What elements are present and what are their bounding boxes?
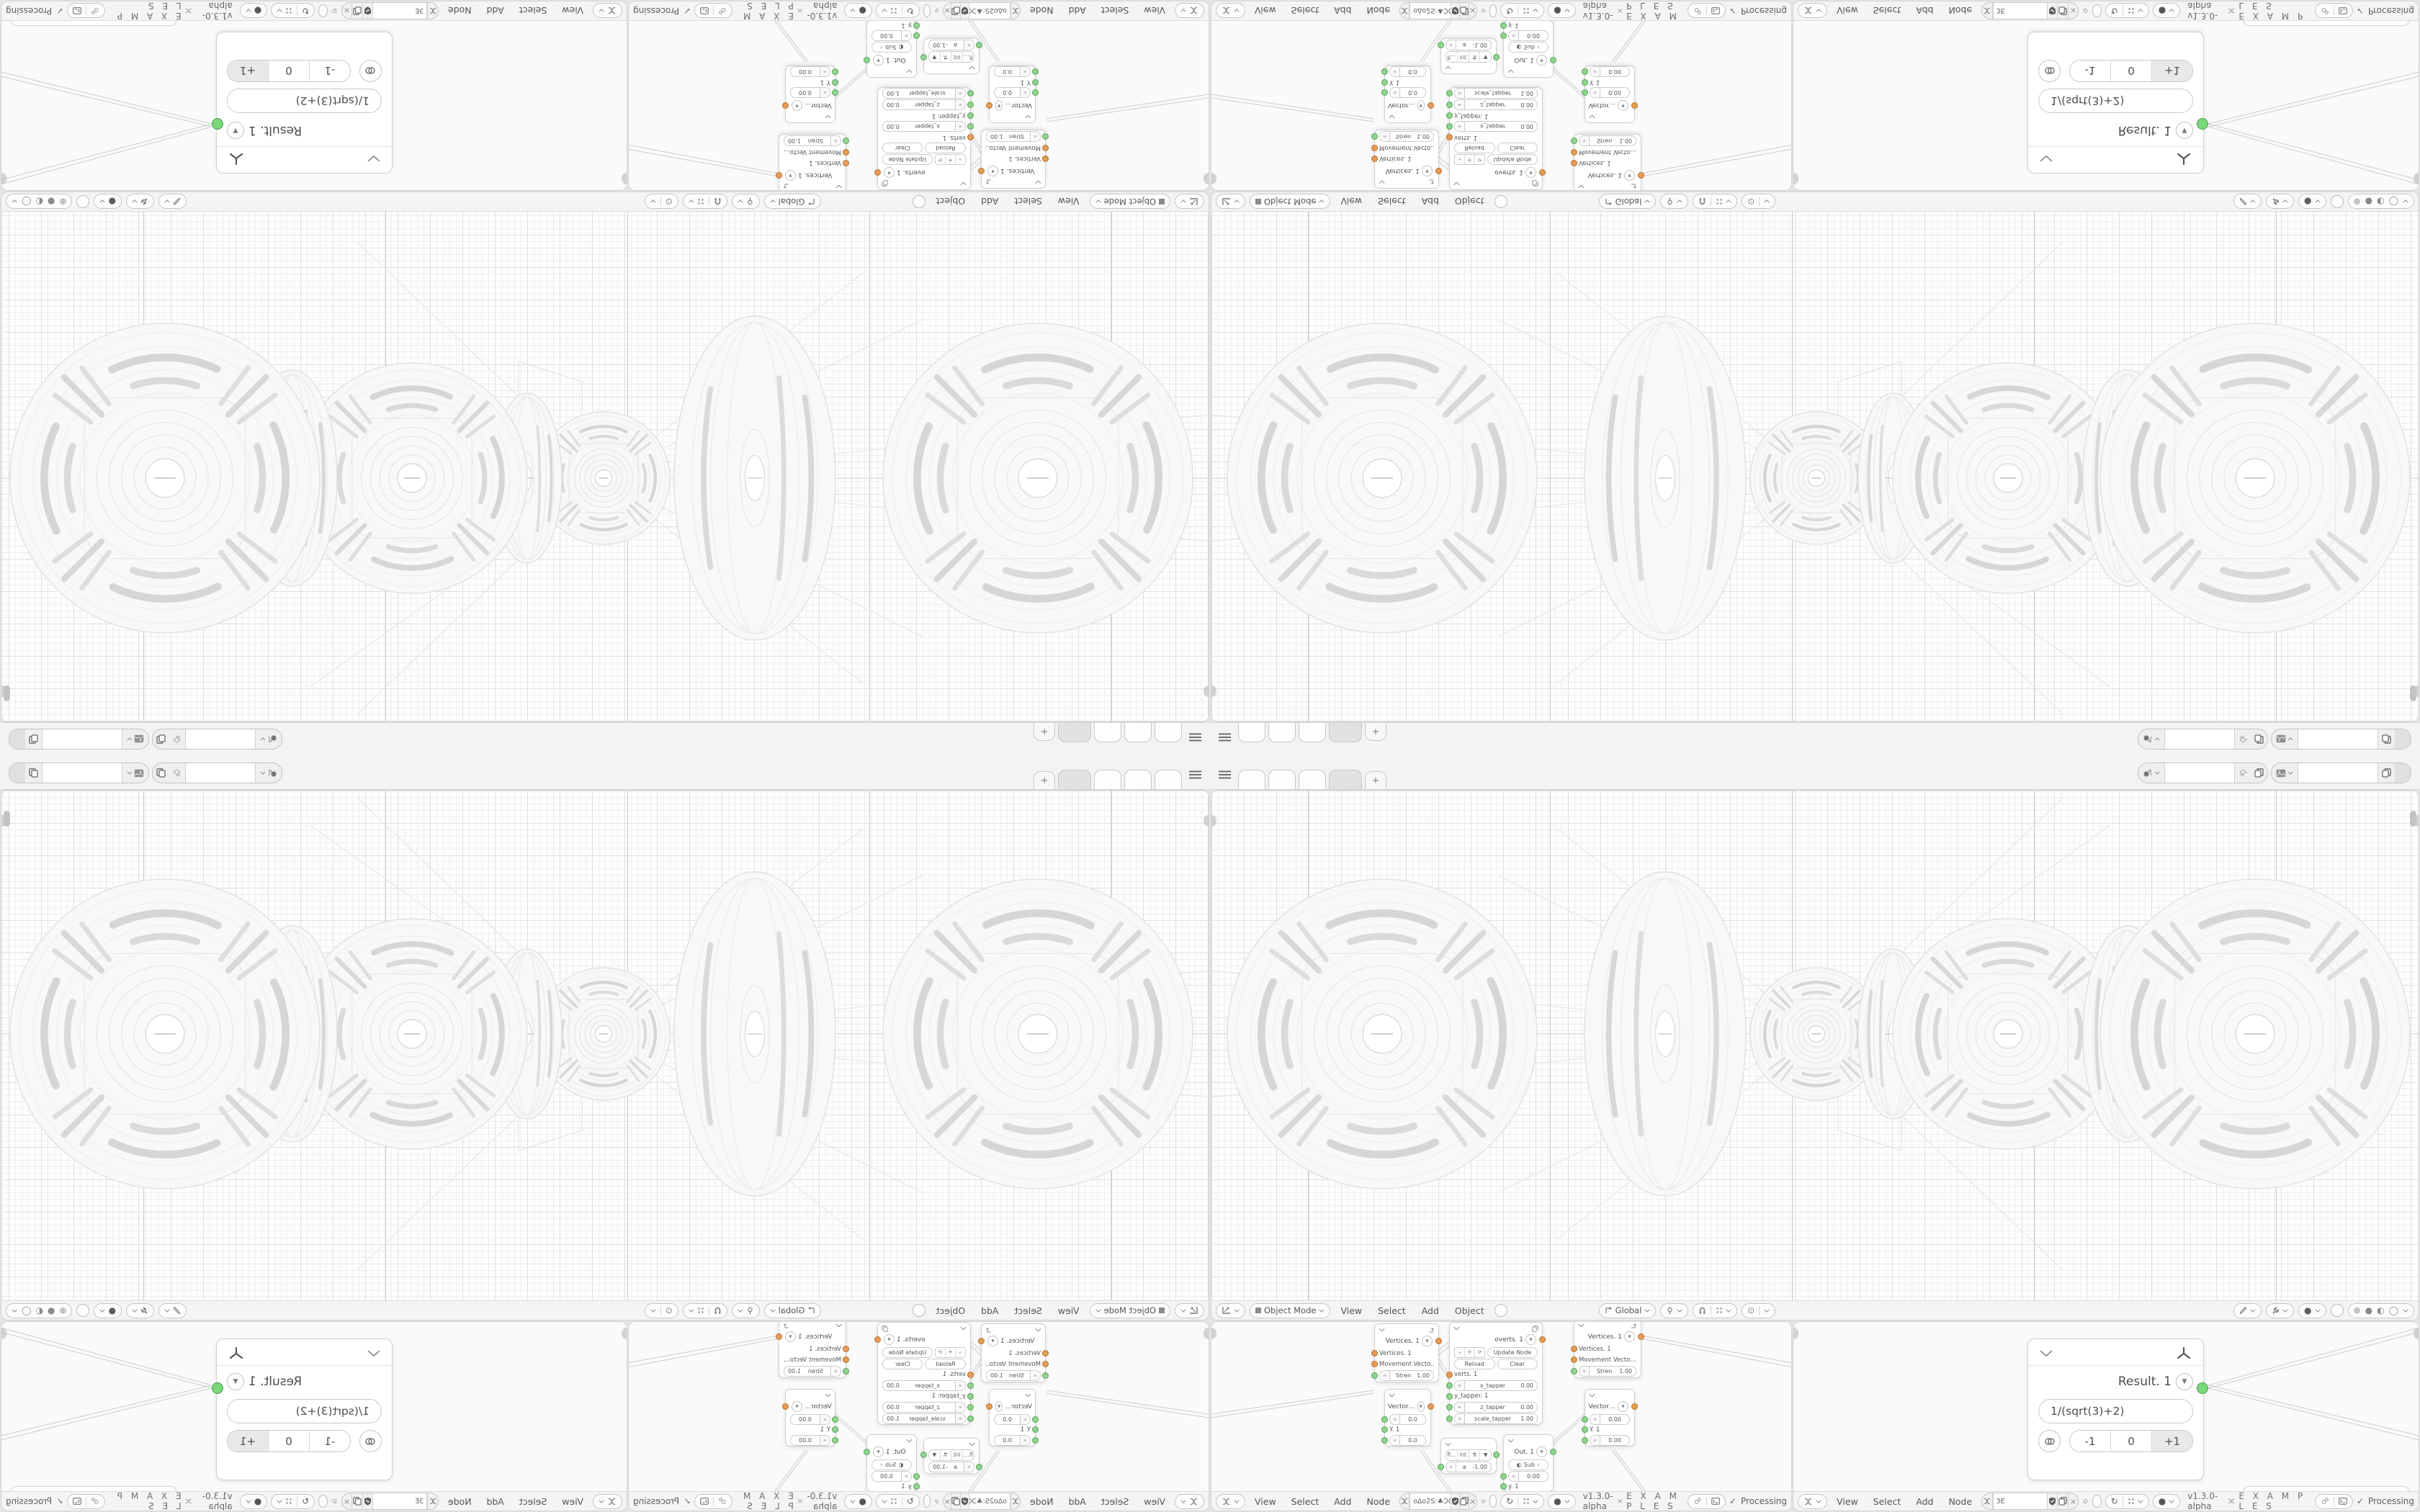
redirect-icon[interactable]: ⤷ (955, 156, 965, 165)
field-toggle-icon[interactable]: ≡ (1446, 40, 1456, 50)
input-socket[interactable] (1571, 138, 1577, 144)
refresh-icon[interactable]: ⟳ (1475, 1348, 1484, 1357)
menu-add[interactable]: Add (1328, 6, 1357, 17)
field-toggle-icon[interactable]: ≡ (964, 40, 974, 50)
tool-circle-button[interactable] (923, 4, 931, 17)
user-snap-group[interactable]: ↻ (1500, 4, 1544, 19)
pin-icon[interactable] (2082, 1497, 2089, 1506)
input-socket[interactable] (1042, 145, 1049, 151)
beaker-icon[interactable]: ⚗ (940, 1450, 951, 1460)
collapse-chevron-icon[interactable] (1025, 1393, 1031, 1398)
tree-name-field[interactable]: oΔo2S:♣ƆC♣ЯRoЯR♣ƆC♣:S2oΔo (969, 1493, 1010, 1509)
tools-group[interactable] (2315, 1494, 2353, 1509)
tools-group[interactable] (67, 4, 105, 19)
decrement-button[interactable]: -1 (2070, 60, 2111, 81)
menu-select[interactable]: Select (1286, 1496, 1325, 1507)
node-out[interactable]: Out. 1▼ ◐Sub∨ ≡0.00 y. 1 (866, 1434, 917, 1492)
field-toggle-icon[interactable]: ≡ (964, 1462, 974, 1472)
vector-z-field[interactable]: ≡0.00 (1590, 67, 1630, 78)
input-socket[interactable] (1500, 33, 1507, 40)
proportional-edit-group[interactable]: ⊙ (645, 194, 678, 210)
snap-button-group[interactable] (683, 194, 727, 210)
pin-icon[interactable] (2235, 769, 2251, 778)
collapse-chevron-icon[interactable] (367, 155, 380, 162)
input-socket[interactable] (1582, 1426, 1588, 1433)
tools-group[interactable] (694, 1494, 732, 1509)
node-overts[interactable]: overts. 1▼ ⤷✳⟳ Update Node Reload Clear … (877, 1322, 971, 1425)
transform-orientation-dropdown[interactable]: Global (764, 1303, 822, 1318)
dropdown-arrow[interactable]: ▼ (929, 53, 940, 63)
node-menu-button[interactable]: ▼ (1536, 1446, 1547, 1457)
collapse-chevron-icon[interactable] (969, 1442, 975, 1446)
menu-object[interactable]: Object (930, 197, 971, 207)
input-socket[interactable] (1446, 113, 1453, 120)
add-workspace-tab-button[interactable]: + (1365, 723, 1386, 741)
shading-mode-group[interactable]: ⊕ ● ◐ ◯ (6, 1303, 72, 1318)
output-socket[interactable] (782, 102, 789, 109)
output-socket[interactable] (1638, 172, 1644, 179)
output-socket[interactable] (1631, 102, 1638, 109)
increment-button[interactable]: +1 (228, 60, 268, 81)
stren-field[interactable]: ≡Stren1.00 (784, 1366, 841, 1377)
input-socket[interactable] (1500, 22, 1507, 29)
close-icon[interactable]: × (944, 1493, 951, 1509)
input-socket[interactable] (1571, 160, 1577, 166)
user-snap-group[interactable]: ↻ (876, 4, 920, 19)
stren-field[interactable]: ≡Stren1.00 (1379, 1370, 1434, 1381)
increment-button[interactable]: +1 (2152, 1431, 2192, 1452)
scene-name-field[interactable] (185, 729, 256, 749)
mode-dropdown[interactable]: Object Mode (1250, 194, 1330, 210)
workspace-tab-4-active[interactable] (1329, 770, 1362, 789)
output-socket[interactable] (1638, 1333, 1644, 1340)
app-menu-icon[interactable] (1219, 733, 1231, 742)
shield-icon[interactable] (362, 1493, 373, 1509)
tree-icon-dropdown[interactable] (1982, 1493, 1993, 1509)
workspace-tab-4-active[interactable] (1058, 723, 1091, 742)
editor-type-button[interactable] (1175, 1494, 1204, 1509)
input-socket[interactable] (1446, 1372, 1453, 1378)
a-value-field[interactable]: ≡a-1.00 (1446, 40, 1492, 50)
workspace-tab-3[interactable] (1299, 770, 1326, 789)
shield-icon[interactable] (362, 3, 373, 19)
a-value-field[interactable]: ≡a-1.00 (1446, 1462, 1492, 1472)
node-result[interactable]: Result. 1 ▼ 1/(sqrt(3)+2) -1 0 +1 (216, 1338, 393, 1480)
stren-field[interactable]: ≡Stren1.00 (1579, 1366, 1636, 1377)
vector-x-field[interactable]: ≡0.00 (1590, 1414, 1630, 1425)
close-icon[interactable]: × (342, 1493, 352, 1509)
editor-type-button[interactable] (1175, 1303, 1204, 1318)
collapse-chevron-icon[interactable] (1035, 1328, 1041, 1332)
scene-name-field[interactable] (185, 763, 256, 783)
pin-icon[interactable] (2082, 6, 2089, 16)
input-socket[interactable] (843, 1356, 849, 1363)
collapse-chevron-icon[interactable] (1035, 180, 1041, 184)
field-toggle-icon[interactable]: ≡ (1509, 1472, 1519, 1481)
node-menu-button[interactable]: ▼ (1536, 55, 1547, 66)
menu-view[interactable]: View (1138, 6, 1171, 17)
field-toggle-icon[interactable]: ≡ (1590, 89, 1600, 98)
pin-icon[interactable] (169, 769, 185, 778)
shading-mode-group[interactable]: ⊕ ● ◐ ◯ (2348, 194, 2414, 210)
area-corner-nub[interactable] (622, 1328, 627, 1339)
workspace-tab-2[interactable] (1268, 770, 1296, 789)
input-socket[interactable] (967, 91, 974, 97)
node-menu-button[interactable]: ▼ (1422, 1336, 1433, 1346)
beaker-icon[interactable]: ⚗ (1469, 1450, 1481, 1460)
input-socket[interactable] (1032, 69, 1039, 76)
output-socket[interactable] (1539, 169, 1546, 176)
output-socket[interactable] (1539, 1336, 1546, 1343)
workspace-tab-2[interactable] (1268, 723, 1296, 742)
node-out[interactable]: Out. 1▼ ◐Sub∨ ≡0.00 y. 1 (1503, 20, 1554, 78)
menu-add[interactable]: Add (975, 1305, 1004, 1316)
node-vector[interactable]: Vector…▼ ≡0.00 Y. 1 ≡0.00 (785, 66, 835, 123)
input-socket[interactable] (1571, 149, 1577, 156)
vector-x-field[interactable]: ≡0.00 (790, 88, 830, 99)
output-socket[interactable] (782, 1403, 789, 1410)
node-canvas[interactable]: Result. 1 ▼ 1/(sqrt(3)+2) -1 0 +1 (1, 1322, 627, 1493)
field-toggle-icon[interactable]: ≡ (820, 89, 830, 98)
scale-tapper-field[interactable]: ≡scale_tapper1.00 (882, 1413, 966, 1424)
settings-icon[interactable]: ✳ (945, 156, 955, 165)
menu-select[interactable]: Select (1008, 1305, 1048, 1316)
copy-icon[interactable] (153, 768, 169, 778)
pin-icon[interactable] (2235, 735, 2251, 744)
node-menu-button[interactable]: ▼ (873, 55, 884, 66)
collapse-chevron-icon[interactable] (1578, 184, 1585, 189)
input-socket[interactable] (1371, 145, 1378, 151)
field-toggle-icon[interactable]: ≡ (955, 1403, 965, 1412)
node-menu-button[interactable]: ▼ (873, 1446, 884, 1457)
node-tool-buttons[interactable]: ⤷✳⟳ (1454, 1347, 1485, 1358)
field-toggle-icon[interactable]: ≡ (1020, 1415, 1030, 1424)
input-socket[interactable] (1032, 1426, 1039, 1433)
tool-circle-button[interactable] (1494, 195, 1507, 208)
area-corner-nub[interactable] (622, 173, 627, 184)
node-vertices[interactable]: Vertices. 1▼ Vertices. 1 Movement Vecto…… (1574, 134, 1641, 191)
result-output-socket[interactable] (2197, 118, 2208, 130)
workspace-tab-3[interactable] (1094, 770, 1121, 789)
output-socket[interactable] (920, 1452, 927, 1458)
vector-z-field[interactable]: ≡0.00 (1590, 1435, 1630, 1446)
input-socket[interactable] (1571, 1356, 1577, 1363)
node-menu-button[interactable]: ▼ (792, 1401, 802, 1412)
collapse-chevron-icon[interactable] (960, 1326, 967, 1331)
update-node-button[interactable]: Update Node (1487, 155, 1538, 166)
node-canvas[interactable]: Result. 1 ▼ 1/(sqrt(3)+2) -1 0 +1 (1, 19, 627, 190)
node-vector[interactable]: Vector…▼ ≡0.00 Y. 1 ≡0.00 (785, 1389, 835, 1446)
copy-icon[interactable] (2378, 768, 2395, 778)
link-button[interactable] (2038, 1430, 2061, 1452)
copy-icon[interactable] (153, 734, 169, 744)
input-socket[interactable] (1446, 135, 1453, 141)
collapse-chevron-icon[interactable] (1453, 1326, 1460, 1331)
output-socket[interactable] (1435, 1338, 1442, 1344)
close-icon[interactable]: × (1469, 3, 1476, 19)
field-toggle-icon[interactable]: ≡ (955, 1414, 965, 1423)
xray-toggle[interactable] (76, 195, 89, 208)
xray-toggle[interactable] (76, 1304, 89, 1317)
menu-node[interactable]: Node (1024, 6, 1059, 17)
close-icon[interactable]: × (342, 3, 352, 19)
shading-mode-group[interactable]: ⊕ ● ◐ ◯ (2348, 1303, 2414, 1318)
input-socket[interactable] (1381, 79, 1388, 86)
node-menu-button[interactable]: ▼ (792, 100, 802, 111)
input-socket[interactable] (967, 1393, 974, 1400)
float-option[interactable]: fl… (1446, 1450, 1458, 1460)
menu-view[interactable]: View (1249, 6, 1282, 17)
settings-icon[interactable]: ✳ (1465, 1348, 1475, 1357)
node-overts[interactable]: overts. 1▼ ⤷✳⟳ Update Node Reload Clear … (1449, 87, 1543, 190)
pin-icon[interactable] (934, 1497, 939, 1506)
user-snap-group[interactable]: ↻ (876, 1494, 920, 1509)
input-socket[interactable] (1032, 90, 1039, 96)
pivot-point-button[interactable] (1660, 194, 1688, 210)
pin-icon[interactable] (1481, 1497, 1486, 1506)
menu-select[interactable]: Select (1095, 1496, 1135, 1507)
node-menu-button[interactable]: ▼ (1624, 170, 1635, 181)
collapse-chevron-icon[interactable] (960, 181, 967, 186)
viewport-canvas[interactable] (1211, 210, 2419, 721)
menu-add[interactable]: Add (975, 197, 1004, 207)
z-tapper-field[interactable]: ≡z_tapper0.00 (1454, 100, 1538, 111)
node-menu-button[interactable]: ▼ (1624, 1331, 1635, 1342)
input-socket[interactable] (1371, 1372, 1378, 1379)
input-socket[interactable] (976, 1464, 982, 1470)
zero-button[interactable]: 0 (268, 60, 309, 81)
input-socket[interactable] (1446, 1393, 1453, 1400)
menu-node[interactable]: Node (442, 6, 478, 17)
field-toggle-icon[interactable]: ≡ (1390, 1436, 1400, 1445)
input-socket[interactable] (1371, 1361, 1378, 1367)
field-toggle-icon[interactable]: ≡ (901, 32, 911, 41)
x-tapper-field[interactable]: ≡x_tapper0.00 (882, 1380, 966, 1391)
output-socket[interactable] (864, 1449, 870, 1455)
update-node-button[interactable]: Update Node (882, 1347, 933, 1358)
overlays-group[interactable] (2266, 1303, 2294, 1318)
output-socket[interactable] (776, 172, 782, 179)
pin-icon[interactable] (1481, 6, 1486, 16)
shield-icon[interactable] (1451, 3, 1460, 19)
out-value-field[interactable]: ≡0.00 (1508, 31, 1549, 42)
node-canvas[interactable]: Result. 1 ▼ 1/(sqrt(3)+2) -1 0 +1 (1793, 1322, 2419, 1493)
field-toggle-icon[interactable]: ≡ (1380, 132, 1390, 141)
float-option[interactable]: fl… (962, 1450, 974, 1460)
workspace-tab-2[interactable] (1124, 723, 1152, 742)
input-socket[interactable] (1042, 156, 1049, 162)
increment-button[interactable]: +1 (228, 1431, 268, 1452)
field-toggle-icon[interactable]: ≡ (955, 89, 965, 99)
field-toggle-icon[interactable]: ≡ (1579, 136, 1590, 145)
node-menu-button[interactable]: ▼ (884, 1334, 895, 1345)
workspace-tab-1[interactable] (1155, 723, 1182, 742)
app-menu-icon[interactable] (1219, 770, 1231, 779)
scale-tapper-field[interactable]: ≡scale_tapper1.00 (1454, 1413, 1538, 1424)
viewport-canvas[interactable] (1, 791, 1209, 1302)
scene-name-field[interactable] (2164, 729, 2235, 749)
node-canvas[interactable]: Vertices. 1▼ Vertices. 1 Movement Vecto…… (629, 1322, 1209, 1493)
input-socket[interactable] (1582, 69, 1588, 76)
out-value-field[interactable]: ≡0.00 (871, 31, 912, 42)
node-menu-button[interactable]: ▼ (987, 1336, 998, 1346)
node-menu-button[interactable]: ▼ (785, 170, 796, 181)
snap-button-group[interactable] (1693, 1303, 1737, 1318)
node-vertices[interactable]: Vertices. 1▼ Vertices. 1 Movement Vecto…… (981, 130, 1046, 189)
matcap-group[interactable]: ● (2298, 194, 2326, 210)
node-menu-button[interactable]: ▼ (1618, 1401, 1628, 1412)
tool-circle-button[interactable] (923, 1495, 931, 1508)
material-preview-group[interactable]: ● (2153, 1494, 2180, 1509)
operation-dropdown[interactable]: ◐Sub∨ (871, 42, 912, 53)
material-preview-group[interactable]: ● (844, 4, 871, 19)
vector-z-field[interactable]: ≡0.00 (790, 1435, 830, 1446)
formula-input[interactable]: 1/(sqrt(3)+2) (2038, 1399, 2193, 1423)
field-toggle-icon[interactable]: ≡ (1455, 1403, 1465, 1412)
collapse-chevron-icon[interactable] (2040, 1350, 2053, 1357)
input-socket[interactable] (1446, 1404, 1453, 1410)
collapse-chevron-icon[interactable] (1507, 1439, 1514, 1443)
menu-add[interactable]: Add (481, 6, 510, 17)
input-socket[interactable] (967, 113, 974, 120)
scene-selector[interactable] (152, 762, 282, 783)
examples-button[interactable]: E X A M P L E S (736, 1, 794, 21)
node-canvas[interactable]: Result. 1 ▼ 1/(sqrt(3)+2) -1 0 +1 (1793, 19, 2419, 190)
input-socket[interactable] (1371, 156, 1378, 162)
float-option[interactable]: fl… (962, 53, 974, 63)
workspace-tab-4-active[interactable] (1058, 770, 1091, 789)
field-toggle-icon[interactable]: ≡ (1390, 68, 1400, 77)
node-menu-button[interactable]: ▼ (884, 167, 895, 178)
input-socket[interactable] (1446, 1416, 1453, 1422)
copy-icon[interactable] (1460, 3, 1469, 19)
field-toggle-icon[interactable]: ≡ (1390, 89, 1400, 98)
menu-view[interactable]: View (1052, 1305, 1085, 1316)
node-vertices[interactable]: Vertices. 1▼ Vertices. 1 Movement Vecto…… (779, 1321, 846, 1378)
menu-select[interactable]: Select (1372, 197, 1412, 207)
vector-x-field[interactable]: ≡0.0 (1389, 88, 1426, 99)
menu-view[interactable]: View (1831, 6, 1864, 17)
workspace-tab-2[interactable] (1124, 770, 1152, 789)
editor-type-button[interactable] (593, 4, 622, 19)
collapse-chevron-icon[interactable] (2040, 155, 2053, 162)
stren-field[interactable]: ≡Stren1.00 (784, 135, 841, 146)
input-socket[interactable] (843, 160, 849, 166)
shield-icon[interactable] (2048, 3, 2058, 19)
menu-object[interactable]: Object (930, 1305, 971, 1316)
menu-add[interactable]: Add (1416, 197, 1445, 207)
input-socket[interactable] (832, 69, 838, 76)
shield-icon[interactable] (2048, 1493, 2058, 1509)
matcap-group[interactable]: ● (2298, 1303, 2326, 1318)
copy-icon[interactable] (2251, 768, 2267, 778)
proportional-edit-group[interactable]: ⊙ (1742, 1303, 1775, 1318)
node-menu-button[interactable]: ▼ (2176, 1373, 2193, 1390)
examples-button[interactable]: E X A M P L E S (2238, 1491, 2311, 1511)
operation-dropdown[interactable]: ◐Sub∨ (871, 1459, 912, 1470)
collapse-chevron-icon[interactable] (969, 66, 975, 70)
node-menu-button[interactable]: ▼ (785, 1331, 796, 1342)
overlays-group[interactable] (126, 194, 154, 210)
copy-icon[interactable] (25, 734, 42, 744)
collapse-chevron-icon[interactable] (1025, 114, 1031, 119)
shield-icon[interactable] (960, 3, 969, 19)
operation-dropdown[interactable]: ◐Sub∨ (1508, 1459, 1549, 1470)
matcap-group[interactable]: ● (94, 194, 121, 210)
input-socket[interactable] (1371, 133, 1378, 140)
viewport-canvas[interactable] (1211, 791, 2419, 1302)
processing-status[interactable]: ✓ Processing (2357, 1496, 2414, 1506)
node-menu-button[interactable]: ▼ (987, 166, 998, 176)
tools-group[interactable] (2315, 4, 2353, 19)
tree-icon-dropdown[interactable] (1400, 3, 1410, 19)
tree-icon-dropdown[interactable] (427, 1493, 438, 1509)
input-socket[interactable] (913, 33, 920, 40)
show-gizmo-group[interactable] (158, 194, 187, 210)
clear-button[interactable]: Clear (1497, 1359, 1538, 1369)
pin-icon[interactable] (169, 735, 185, 744)
tree-icon-dropdown[interactable] (1400, 1493, 1410, 1509)
menu-add[interactable]: Add (1328, 1496, 1357, 1507)
user-snap-group[interactable]: ↻ (271, 1494, 315, 1509)
tool-circle-button[interactable] (1494, 1304, 1507, 1317)
viewport-canvas[interactable] (1, 210, 1209, 721)
scale-tapper-field[interactable]: ≡scale_tapper1.00 (882, 89, 966, 99)
input-socket[interactable] (1582, 1437, 1588, 1444)
input-socket[interactable] (1381, 1437, 1388, 1444)
int-option[interactable]: int (1458, 53, 1469, 63)
pivot-point-button[interactable] (1660, 1303, 1688, 1318)
tools-group[interactable] (1688, 1494, 1726, 1509)
x-tapper-field[interactable]: ≡x_tapper0.00 (882, 122, 966, 132)
node-canvas[interactable]: Vertices. 1▼ Vertices. 1 Movement Vecto…… (629, 19, 1209, 190)
collapse-chevron-icon[interactable] (906, 69, 913, 73)
tree-name-field[interactable]: oΔo2S:♣ƆC♣ЯRoЯR♣ƆC♣:S2oΔo (1410, 1493, 1451, 1509)
a-value-field[interactable]: ≡a-1.00 (928, 1462, 974, 1472)
input-socket[interactable] (843, 149, 849, 156)
reload-button[interactable]: Reload (1454, 1359, 1495, 1369)
material-preview-group[interactable]: ● (240, 1494, 267, 1509)
node-vector[interactable]: Vector…▼ ≡0.0 Y. 1 ≡0.0 (1384, 1389, 1431, 1446)
collapse-chevron-icon[interactable] (825, 114, 831, 119)
node-menu-button[interactable]: ▼ (2176, 122, 2193, 139)
input-socket[interactable] (1446, 1382, 1453, 1389)
snap-button-group[interactable] (683, 1303, 727, 1318)
scene-name-field[interactable] (2164, 763, 2235, 783)
clear-button[interactable]: Clear (882, 1359, 923, 1369)
tree-name-field[interactable]: 3E (372, 1493, 427, 1509)
viewlayer-selector[interactable] (2271, 729, 2411, 750)
field-toggle-icon[interactable]: ≡ (1590, 68, 1600, 77)
field-toggle-icon[interactable]: ≡ (830, 136, 841, 145)
input-socket[interactable] (1381, 69, 1388, 76)
editor-type-button[interactable] (1216, 194, 1245, 210)
vector-x-field[interactable]: ≡0.00 (1590, 88, 1630, 99)
tree-name-field[interactable]: 3E (1993, 1493, 2048, 1509)
area-corner-nub[interactable] (2414, 685, 2419, 697)
add-workspace-tab-button[interactable]: + (1034, 771, 1055, 789)
reload-button[interactable]: Reload (926, 143, 967, 154)
user-snap-group[interactable]: ↻ (2105, 1494, 2149, 1509)
node-menu-button[interactable]: ▼ (1525, 1334, 1536, 1345)
refresh-icon[interactable]: ⟳ (1475, 156, 1484, 165)
area-corner-nub[interactable] (1204, 685, 1209, 697)
input-socket[interactable] (967, 1404, 974, 1410)
settings-icon[interactable]: ✳ (1465, 156, 1475, 165)
menu-node[interactable]: Node (442, 1496, 478, 1507)
menu-view[interactable]: View (1138, 1496, 1171, 1507)
pin-icon[interactable] (331, 6, 338, 16)
